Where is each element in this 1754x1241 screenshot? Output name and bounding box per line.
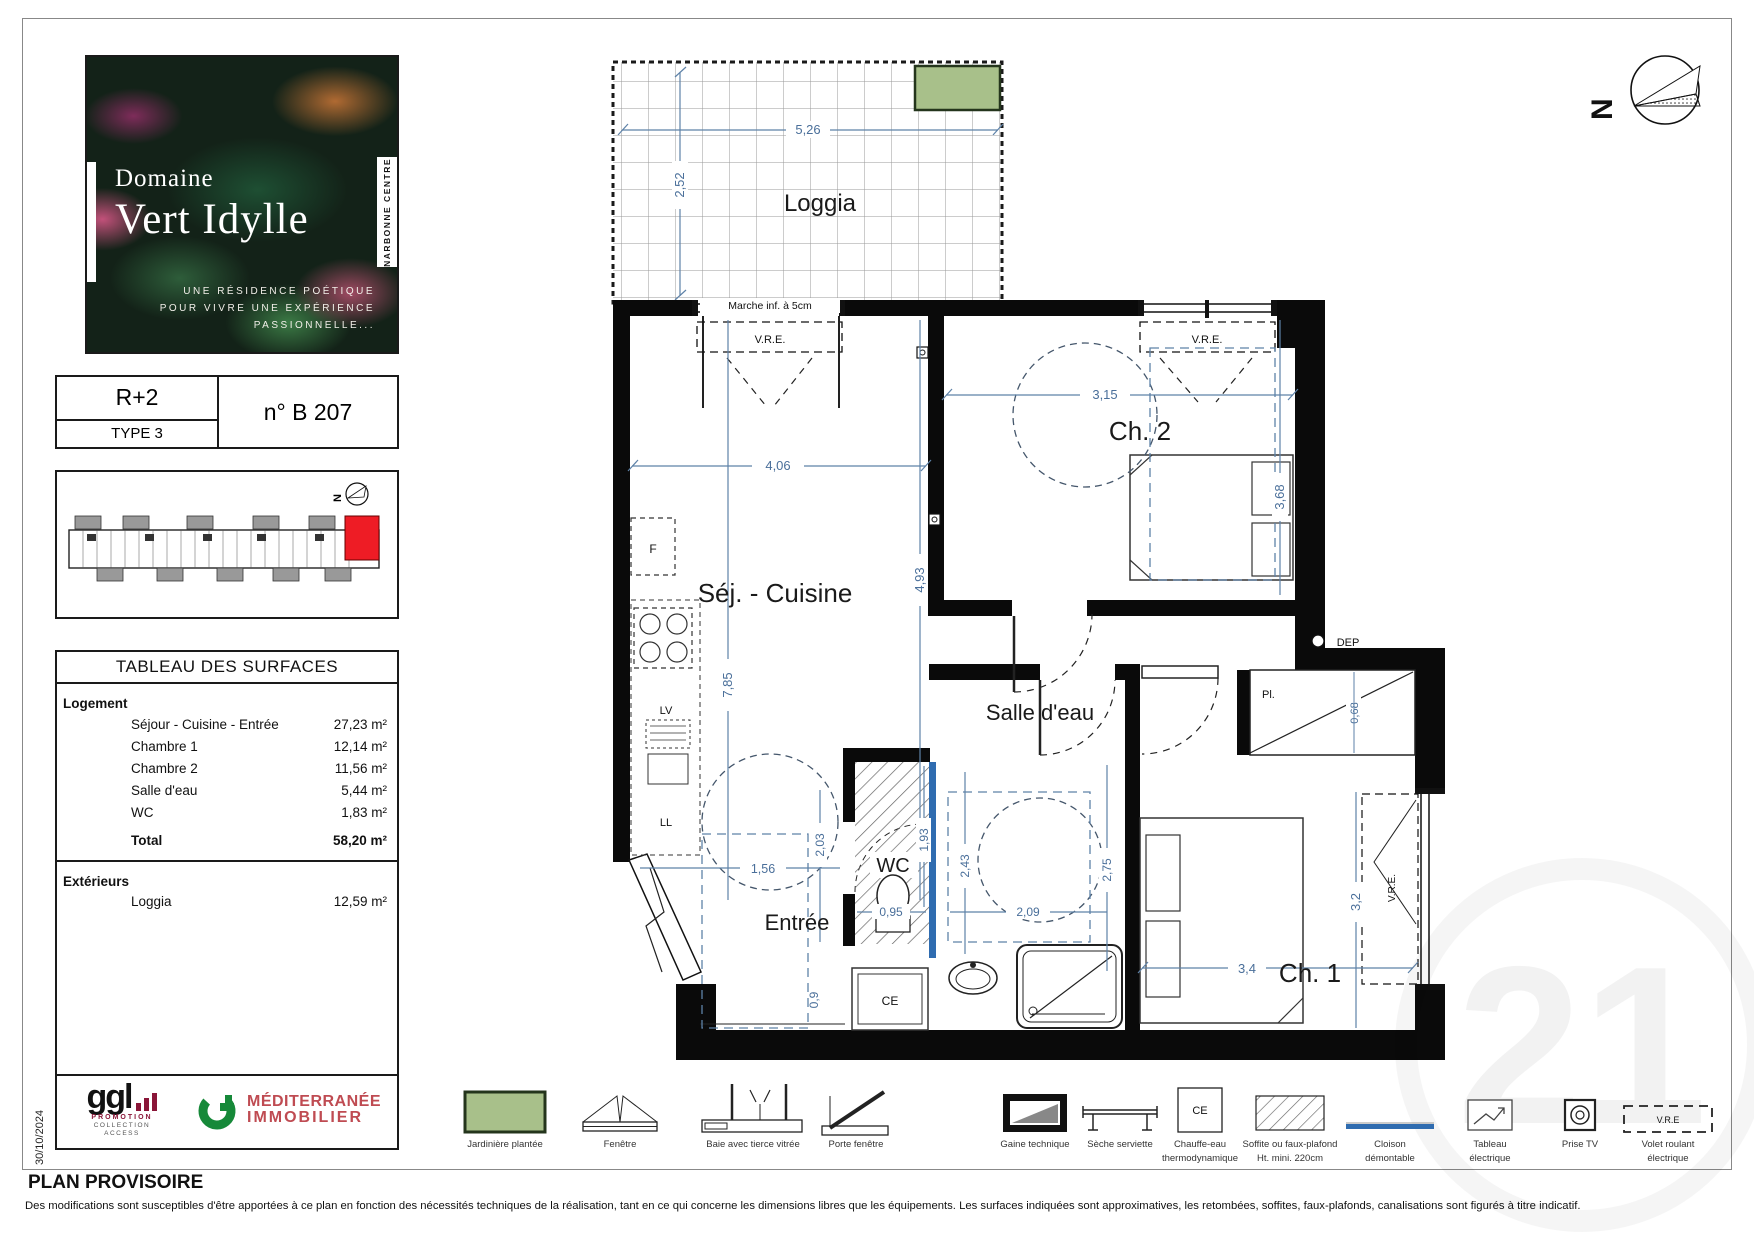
table-row: WC1,83 m²	[57, 801, 397, 823]
dep-label: DEP	[1337, 637, 1360, 649]
dim-sde-width: 2,09	[1016, 905, 1040, 919]
group-exterieurs: Extérieurs	[57, 862, 397, 891]
bed-ch2	[1130, 455, 1293, 580]
unit-floor: R+2	[57, 377, 217, 421]
watermark-21: 21	[1395, 858, 1754, 1232]
dep-marker: DEP	[1312, 635, 1359, 649]
table-row: Chambre 112,14 m²	[57, 735, 397, 757]
cloison-demontable-icon	[1335, 1078, 1445, 1136]
porte-fenetre-icon	[801, 1078, 911, 1136]
dim-loggia-depth: 2,52	[672, 172, 687, 197]
table-row: Loggia12,59 m²	[57, 891, 397, 913]
svg-text:CE: CE	[1192, 1105, 1207, 1117]
dim-ch2-height: 3,68	[1272, 484, 1287, 509]
dim-entree-height: 2,03	[813, 833, 827, 857]
room-label-loggia: Loggia	[784, 190, 857, 217]
fridge-label: F	[649, 542, 656, 556]
plan-sheet: Domaine Vert Idylle UNE RÉSIDENCE POÉTIQ…	[0, 0, 1754, 1241]
legend-item: Baie avec tierce vitrée	[698, 1078, 808, 1150]
vre-label: V.R.E.	[1387, 874, 1398, 902]
svg-text:N: N	[332, 494, 344, 502]
group-logement: Logement	[57, 684, 397, 713]
dim-ch1-width: 3,4	[1238, 961, 1256, 976]
mini-compass-icon: N	[332, 483, 368, 505]
dim-ch2-width: 3,15	[1092, 387, 1117, 402]
surface-table-title: TABLEAU DES SURFACES	[57, 652, 397, 684]
logos: ggl PROMOTION COLLECTION ACCESS MÉDITERR…	[55, 1072, 399, 1150]
legend-item: Cloison démontable	[1335, 1078, 1445, 1164]
dim-sejour-total: 7,85	[720, 672, 735, 697]
table-row: Séjour - Cuisine - Entrée27,23 m²	[57, 713, 397, 735]
jardiniere-plantee	[915, 66, 1000, 110]
mediterranee-logo: MÉDITERRANÉE IMMOBILIER	[195, 1087, 381, 1133]
room-label-entree: Entrée	[765, 910, 830, 935]
marche-label: Marche inf. à 5cm	[728, 300, 812, 312]
loggia-area: 5,26 2,52 Loggia	[613, 62, 1003, 303]
soffite-icon	[1235, 1078, 1345, 1136]
dim-sde-right: 2,75	[1100, 858, 1114, 882]
room-label-ch1: Ch. 1	[1279, 958, 1341, 988]
disclaimer-text: Des modifications sont susceptibles d'êt…	[25, 1200, 1731, 1212]
dim-entree-width: 1,56	[751, 862, 775, 876]
kitchen: F LV LL	[631, 518, 700, 855]
unit-number: n° B 207	[219, 377, 397, 447]
dim-wc-height: 1,93	[917, 828, 931, 852]
legend-item: Fenêtre	[565, 1078, 675, 1150]
building-overview-drawing: N	[57, 472, 393, 613]
plan-date: 30/10/2024	[34, 1025, 46, 1165]
fenetre-icon	[565, 1078, 675, 1136]
plan-status: PLAN PROVISOIRE	[28, 1172, 203, 1194]
legend-item: Porte fenêtre	[801, 1078, 911, 1150]
brand-name-line2: Vert Idylle	[115, 195, 309, 244]
legend: Jardinière plantée Fenêtre	[450, 1078, 1735, 1166]
unit-type: TYPE 3	[57, 421, 217, 447]
svg-text:V.R.E: V.R.E	[1657, 1115, 1680, 1125]
fenetre-ch2: V.R.E.	[1138, 300, 1277, 402]
north-compass: N	[1590, 42, 1730, 142]
photo-notch	[87, 162, 96, 282]
baie-vitree-icon	[698, 1078, 808, 1136]
dim-ch1-height: 3,2	[1348, 893, 1363, 911]
placard: Pl. 0,68	[1250, 670, 1415, 755]
dim-wc-width: 0,95	[879, 905, 903, 919]
entry-door: 0,9	[629, 854, 845, 1024]
ce-label: CE	[882, 994, 899, 1008]
placard-label: Pl.	[1262, 689, 1275, 701]
table-total-row: Total58,20 m²	[57, 823, 397, 852]
legend-item: Jardinière plantée	[450, 1078, 560, 1150]
table-row: Salle d'eau5,44 m²	[57, 779, 397, 801]
brand-name-line1: Domaine	[115, 165, 309, 193]
jardiniere-icon	[450, 1078, 560, 1136]
lv-label: LV	[660, 705, 673, 717]
dim-loggia-width: 5,26	[795, 122, 820, 137]
ggl-logo: ggl PROMOTION COLLECTION ACCESS	[57, 1083, 187, 1137]
brand-photo: Domaine Vert Idylle UNE RÉSIDENCE POÉTIQ…	[85, 55, 399, 354]
brand-tagline: UNE RÉSIDENCE POÉTIQUE POUR VIVRE UNE EX…	[160, 283, 375, 334]
surface-table: TABLEAU DES SURFACES Logement Séjour - C…	[55, 650, 399, 1076]
mediterranee-icon	[195, 1087, 241, 1133]
legend-item: Soffite ou faux-plafond Ht. mini. 220cm	[1235, 1078, 1345, 1164]
room-label-ch2: Ch. 2	[1109, 416, 1171, 446]
table-row: Chambre 211,56 m²	[57, 757, 397, 779]
dim-placard: 0,68	[1349, 702, 1361, 723]
vre-label: V.R.E.	[755, 334, 786, 346]
unit-info-table: R+2 TYPE 3 n° B 207	[55, 375, 399, 449]
floor-plan: 5,26 2,52 Loggia	[560, 40, 1540, 1080]
vre-label: V.R.E.	[1192, 334, 1223, 346]
ggl-bars-icon	[136, 1093, 157, 1111]
north-letter: N	[1590, 98, 1619, 120]
stove	[634, 608, 692, 668]
room-label-sde: Salle d'eau	[986, 700, 1094, 725]
dim-sejour-height: 4,93	[912, 567, 927, 592]
brand-title: Domaine Vert Idylle	[115, 165, 309, 244]
location-ribbon: NARBONNE CENTRE	[377, 157, 397, 267]
dim-sejour-width: 4,06	[765, 458, 790, 473]
highlighted-unit	[345, 516, 379, 560]
bed-ch1	[1140, 818, 1303, 1023]
legend-item: V.R.E Volet roulant électrique	[1613, 1078, 1723, 1164]
room-label-sejour: Séj. - Cuisine	[698, 578, 853, 608]
ll-label: LL	[660, 817, 672, 829]
dim-entry-door: 0,9	[807, 991, 821, 1008]
dim-sde-height: 2,43	[958, 854, 972, 878]
porte-fenetre-loggia: V.R.E. Marche inf. à 5cm	[692, 298, 845, 408]
volet-roulant-icon: V.R.E	[1613, 1078, 1723, 1136]
room-label-wc: WC	[876, 855, 909, 877]
building-overview: N	[55, 470, 399, 619]
sde-fixtures: CE	[852, 945, 1122, 1030]
